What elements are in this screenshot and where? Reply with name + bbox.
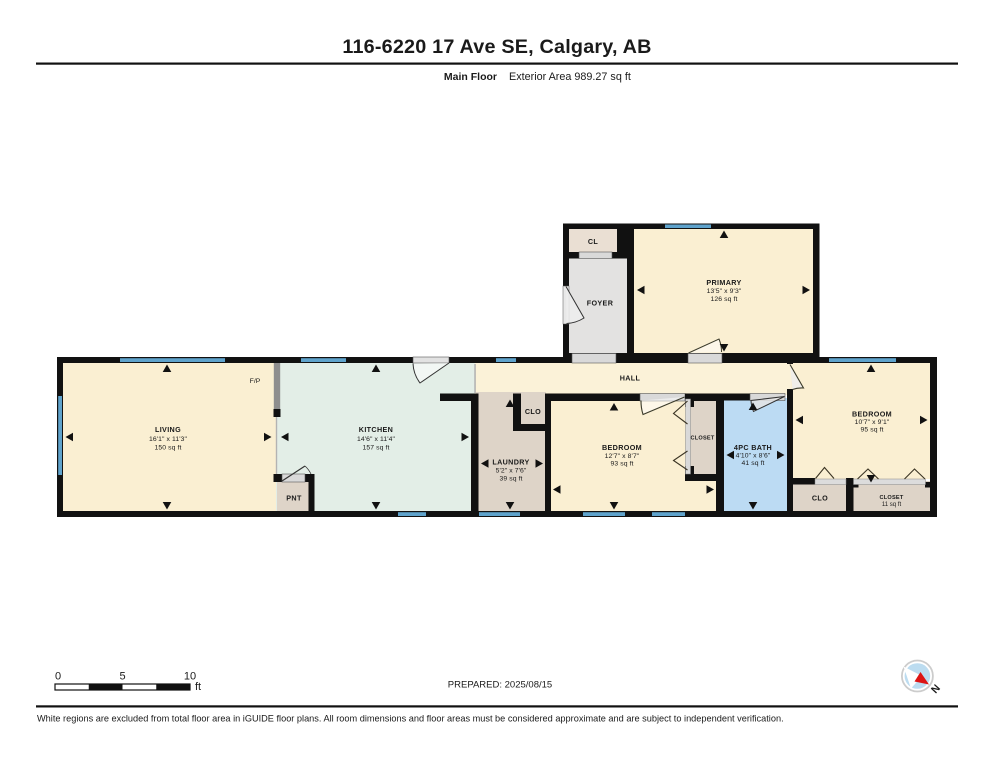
svg-text:White regions are excluded fro: White regions are excluded from total fl… [37, 714, 784, 724]
svg-text:95 sq ft: 95 sq ft [860, 427, 883, 434]
svg-text:157 sq ft: 157 sq ft [363, 445, 390, 452]
svg-text:150 sq ft: 150 sq ft [155, 445, 182, 452]
svg-text:F/P: F/P [250, 378, 261, 385]
svg-text:LIVING: LIVING [155, 425, 181, 434]
svg-text:ft: ft [195, 681, 201, 693]
svg-text:PREPARED: 2025/08/15: PREPARED: 2025/08/15 [448, 680, 552, 691]
svg-text:BEDROOM: BEDROOM [852, 410, 892, 419]
svg-text:5'2" x 7'6": 5'2" x 7'6" [496, 468, 527, 475]
svg-text:16'1" x 11'3": 16'1" x 11'3" [149, 436, 188, 443]
svg-text:116-6220 17 Ave SE, Calgary, A: 116-6220 17 Ave SE, Calgary, AB [342, 36, 651, 58]
svg-text:Main Floor: Main Floor [444, 71, 497, 83]
svg-text:41 sq ft: 41 sq ft [741, 460, 764, 467]
svg-text:93 sq ft: 93 sq ft [610, 461, 633, 468]
svg-text:5: 5 [119, 671, 125, 683]
svg-text:CLO: CLO [525, 407, 541, 416]
svg-text:BEDROOM: BEDROOM [602, 443, 642, 452]
svg-text:CLOSET: CLOSET [691, 436, 715, 442]
svg-text:14'6" x 11'4": 14'6" x 11'4" [357, 436, 396, 443]
svg-text:CLO: CLO [812, 494, 828, 503]
svg-text:39 sq ft: 39 sq ft [499, 476, 522, 483]
svg-text:126 sq ft: 126 sq ft [711, 296, 738, 303]
svg-text:LAUNDRY: LAUNDRY [492, 458, 529, 467]
svg-text:12'7" x 8'7": 12'7" x 8'7" [605, 453, 640, 460]
svg-text:0: 0 [55, 671, 61, 683]
svg-text:CLOSET: CLOSET [880, 495, 904, 501]
svg-text:13'5" x 9'3": 13'5" x 9'3" [707, 288, 742, 295]
svg-text:HALL: HALL [620, 374, 641, 383]
svg-text:PNT: PNT [286, 494, 302, 503]
svg-text:10'7" x 9'1": 10'7" x 9'1" [855, 419, 890, 426]
svg-text:Exterior Area 989.27 sq ft: Exterior Area 989.27 sq ft [509, 71, 631, 83]
svg-text:CL: CL [588, 237, 599, 246]
svg-text:4'10" x 8'6": 4'10" x 8'6" [736, 453, 771, 460]
svg-text:4PC BATH: 4PC BATH [734, 443, 772, 452]
svg-text:KITCHEN: KITCHEN [359, 425, 393, 434]
svg-text:PRIMARY: PRIMARY [706, 278, 741, 287]
svg-text:11 sq ft: 11 sq ft [882, 502, 902, 508]
svg-text:FOYER: FOYER [587, 299, 614, 308]
